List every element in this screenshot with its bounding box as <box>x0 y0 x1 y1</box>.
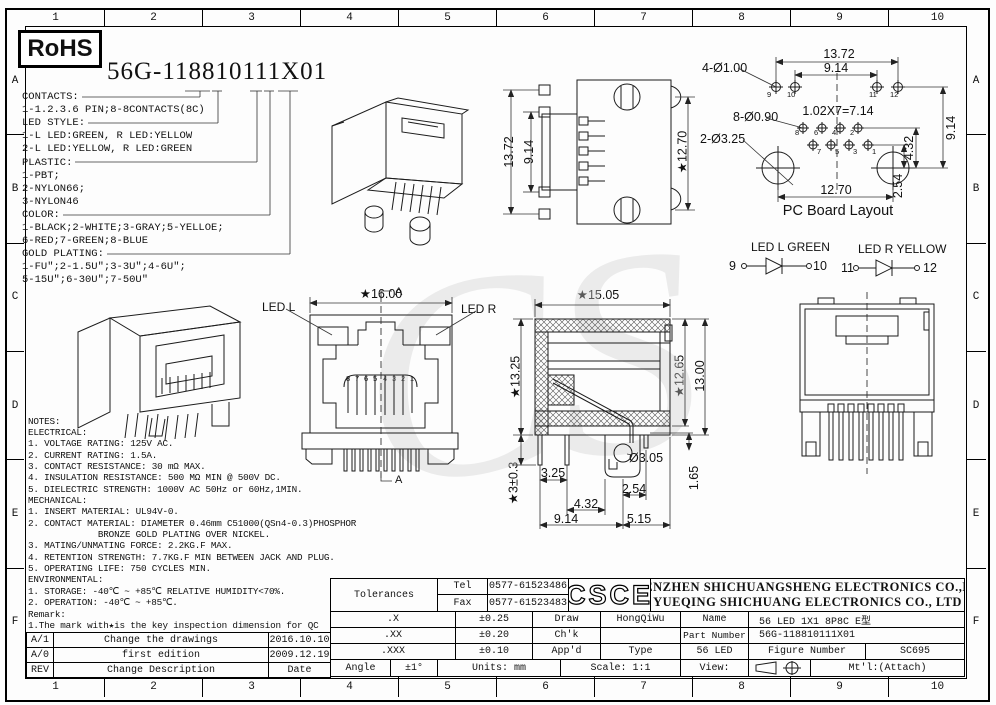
company-logo: CSCE <box>568 578 651 612</box>
type-label: Type <box>600 643 681 660</box>
col-label: 8 <box>693 9 791 26</box>
appd-label: App'd <box>532 643 601 660</box>
rev-id: A/0 <box>26 647 54 663</box>
tol-xx-value: ±0.20 <box>455 627 533 644</box>
ordering-line: 1-PBT; <box>22 170 60 182</box>
ordering-line: 1-1.2.3.6 PIN;8-8CONTACTS(8C) <box>22 104 205 116</box>
ordering-line: 1-BLACK;2-WHITE;3-GRAY;5-YELLOE; <box>22 222 224 234</box>
csce-logo-text: CSCE <box>568 580 651 611</box>
col-label: 5 <box>399 9 497 26</box>
rev-date: 2009.12.19 <box>268 647 331 663</box>
note-line: 1. VOLTAGE RATING: 125V AC. <box>28 438 173 449</box>
ordering-line: PLASTIC: <box>22 157 72 169</box>
front-view <box>258 283 503 583</box>
figure-number-value: SC695 <box>865 643 965 660</box>
bottom-view <box>455 52 705 264</box>
row-label: F <box>6 569 24 676</box>
ordering-line: GOLD PLATING: <box>22 248 104 260</box>
material-cell: Mt'l:(Attach) <box>810 659 965 677</box>
rev-desc: Change the drawings <box>53 632 269 648</box>
engineering-drawing-sheet: CS 1 2 3 4 5 6 7 8 9 10 1 2 3 4 5 6 7 8 … <box>0 0 996 705</box>
rev-header-rev: REV <box>26 662 54 678</box>
note-line: 2. CURRENT RATING: 1.5A. <box>28 450 157 461</box>
rev-desc: first edition <box>53 647 269 663</box>
col-label: 7 <box>595 9 693 26</box>
figure-number-label: Figure Number <box>748 643 866 660</box>
first-angle-projection-icon <box>754 661 806 675</box>
isometric-rear-view <box>322 86 472 244</box>
ordering-line: 3-NYLON46 <box>22 196 79 208</box>
rev-header-desc: Change Description <box>53 662 269 678</box>
tol-x-value: ±0.25 <box>455 611 533 628</box>
note-line: 5. OPERATING LIFE: 750 CYCLES MIN. <box>28 563 211 574</box>
note-line: 5. DIELECTRIC STRENGTH: 1000V AC 50Hz or… <box>28 484 302 495</box>
part-number-heading: 56G-118810111X01 <box>107 58 327 86</box>
draw-value: HongQiWu <box>600 611 681 628</box>
name-label: Name <box>680 611 749 628</box>
angle-value: ±1° <box>390 659 438 677</box>
row-label: D <box>966 352 986 460</box>
row-label: D <box>6 352 24 460</box>
note-line: 2. OPERATION: -40℃ ~ +85℃. <box>28 597 178 608</box>
angle-label: Angle <box>330 659 391 677</box>
note-line: 2. CONTACT MATERIAL: DIAMETER 0.46mm C51… <box>28 518 356 529</box>
col-label: 9 <box>791 677 889 697</box>
note-line: NOTES: <box>28 416 60 427</box>
note-line: ELECTRICAL: <box>28 427 87 438</box>
ordering-line: 2-NYLON66; <box>22 183 85 195</box>
company-name: SHENZHEN SHICHUANGSHENG ELECTRONICS CO.,… <box>650 578 965 612</box>
part-number-label: Part Number <box>680 627 749 644</box>
note-line: 1.The mark with★is the key inspection di… <box>28 620 319 631</box>
ordering-line: COLOR: <box>22 209 60 221</box>
note-line: 1. STORAGE: -40℃ ~ +85℃ RELATIVE HUMIDIT… <box>28 586 285 597</box>
col-label: 8 <box>693 677 791 697</box>
ordering-line: 1-FU″;2-1.5U″;3-3U″;4-6U″; <box>22 261 186 273</box>
led-circuit-legend <box>720 238 970 288</box>
note-line: 4. RETENTION STRENGTH: 7.7KG.F MIN BETWE… <box>28 552 335 563</box>
col-label: 2 <box>105 677 203 697</box>
name-value: 56 LED 1X1 8P8C E型 <box>748 611 965 628</box>
note-line: BRONZE GOLD PLATING OVER NICKEL. <box>28 529 270 540</box>
note-line: MECHANICAL: <box>28 495 87 506</box>
ordering-line: CONTACTS: <box>22 91 79 103</box>
col-label: 7 <box>595 677 693 697</box>
section-view-a-a <box>505 283 760 583</box>
row-label: E <box>966 460 986 568</box>
row-label: E <box>6 460 24 568</box>
row-label: A <box>966 27 986 135</box>
right-row-band: A B C D E F <box>966 27 986 676</box>
draw-label: Draw <box>532 611 601 628</box>
chk-value <box>600 627 681 644</box>
rev-header-date: Date <box>268 662 331 678</box>
tol-xxx-value: ±0.10 <box>455 643 533 660</box>
row-label: B <box>966 135 986 243</box>
bottom-column-band: 1 2 3 4 5 6 7 8 9 10 <box>7 677 986 697</box>
col-label: 10 <box>889 9 986 26</box>
note-line: 3. MATING/UNMATING FORCE: 2.2KG.F MAX. <box>28 540 232 551</box>
ordering-line: 6-RED;7-GREEN;8-BLUE <box>22 235 148 247</box>
tolerances-header: Tolerances <box>330 578 438 612</box>
col-label: 6 <box>497 677 595 697</box>
ordering-line: LED STYLE: <box>22 117 85 129</box>
projection-symbol <box>748 659 811 677</box>
note-line: 1. INSERT MATERIAL: UL94V-0. <box>28 506 179 517</box>
ordering-line: 5-15U″;6-30U″;7-50U″ <box>22 274 148 286</box>
part-number-value: 56G-118810111X01 <box>748 627 965 644</box>
pc-board-layout-view <box>698 35 965 227</box>
rev-date: 2016.10.10 <box>268 632 331 648</box>
company-line-2: YUEQING SHICHUANG ELECTRONICS CO., LTD <box>653 595 962 610</box>
rev-id: A/1 <box>26 632 54 648</box>
col-label: 10 <box>889 677 986 697</box>
col-label: 6 <box>497 9 595 26</box>
scale-cell: Scale: 1:1 <box>560 659 681 677</box>
fax-label: Fax <box>437 594 488 612</box>
tol-xx-label: .XX <box>330 627 456 644</box>
col-label: 5 <box>399 677 497 697</box>
fax-value: 0577-61523483 <box>487 594 569 612</box>
note-line: ENVIRONMENTAL: <box>28 574 103 585</box>
note-line: Remark: <box>28 609 66 620</box>
chk-label: Ch'k <box>532 627 601 644</box>
side-view <box>788 292 946 480</box>
rohs-badge: RoHS <box>18 30 102 68</box>
type-value: 56 LED <box>680 643 749 660</box>
note-line: 3. CONTACT RESISTANCE: 30 mΩ MAX. <box>28 461 206 472</box>
note-line: 4. INSULATION RESISTANCE: 500 MΩ MIN @ 5… <box>28 472 281 483</box>
row-label: F <box>966 569 986 676</box>
tol-x-label: .X <box>330 611 456 628</box>
units-cell: Units: mm <box>437 659 561 677</box>
ordering-line: 1-L LED:GREEN, R LED:YELLOW <box>22 130 192 142</box>
col-label: 3 <box>203 677 301 697</box>
ordering-line: 2-L LED:YELLOW, R LED:GREEN <box>22 143 192 155</box>
tol-xxx-label: .XXX <box>330 643 456 660</box>
col-label: 9 <box>791 9 889 26</box>
col-label: 4 <box>301 677 399 697</box>
col-label: 1 <box>7 677 105 697</box>
isometric-front-view <box>62 288 242 453</box>
view-label: View: <box>680 659 749 677</box>
